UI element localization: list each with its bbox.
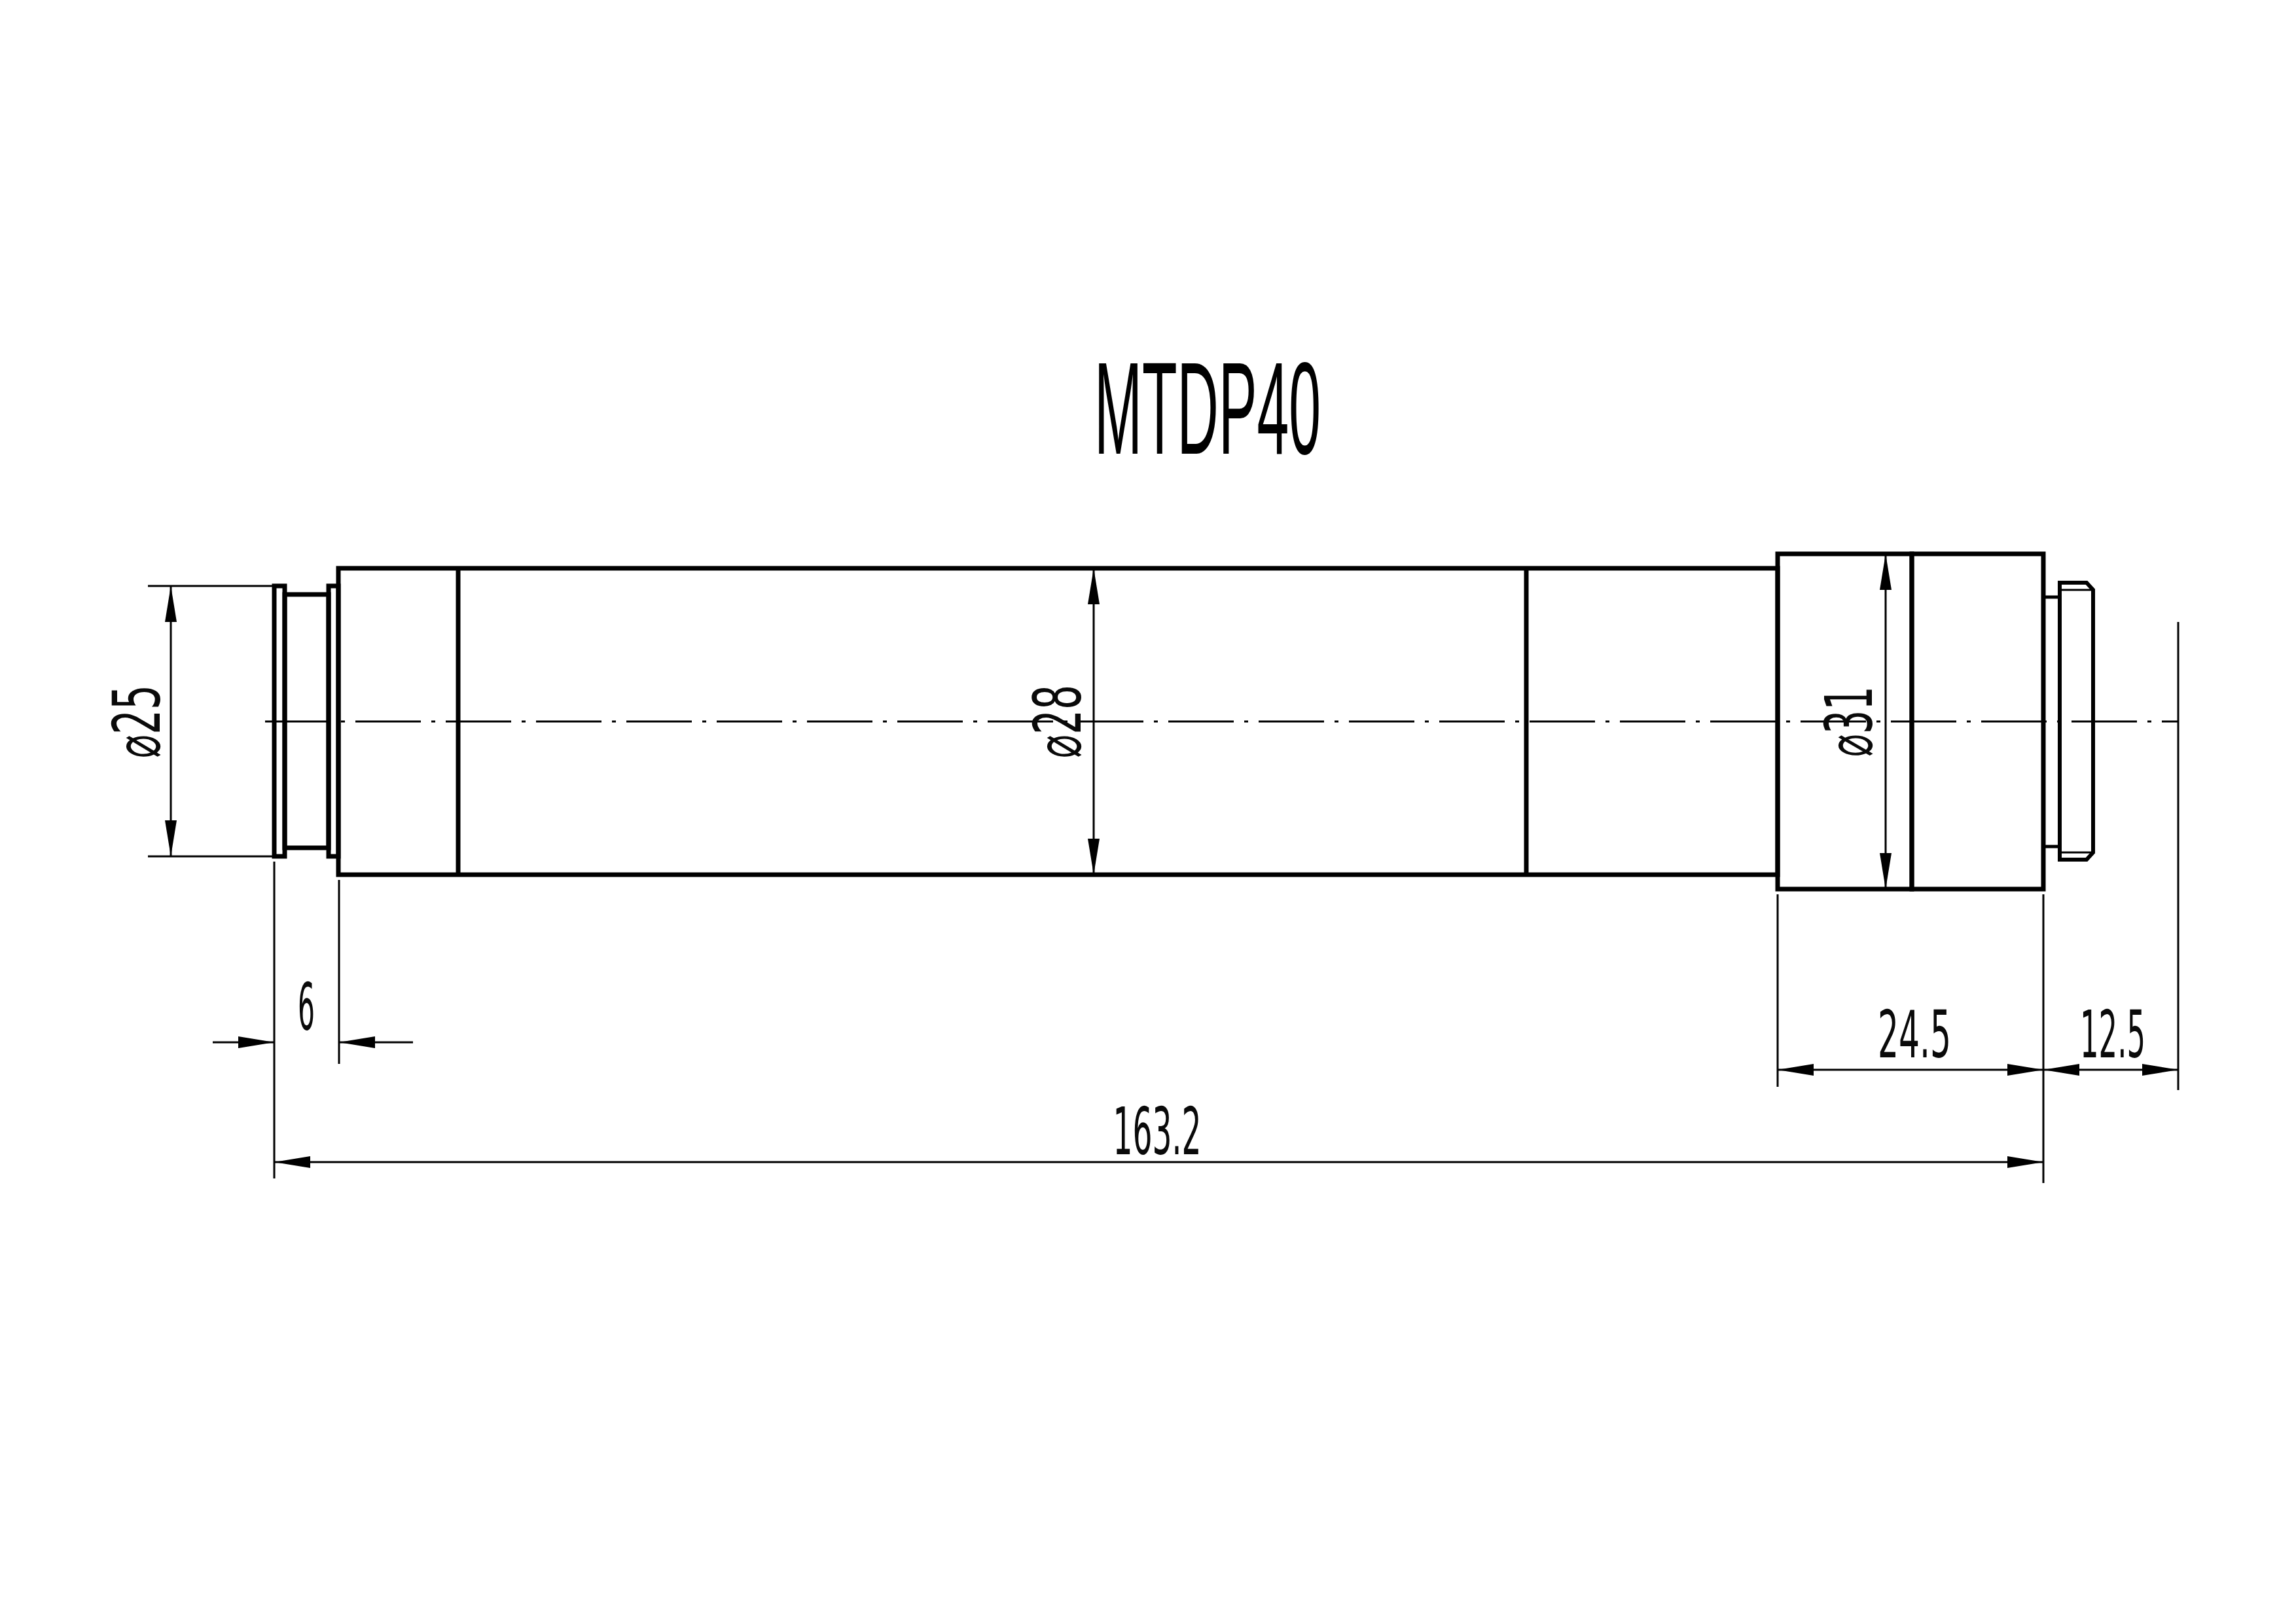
dim-text-6: 6 [298,969,315,1046]
lens-technical-drawing: MTDP40 ⌀25 [0,0,2296,1623]
dim-text-dia-28: ⌀28 [1020,685,1096,758]
dim-text-dia-25: ⌀25 [99,685,175,758]
dim-text-12-5: 12.5 [2080,996,2145,1073]
drawing-sheet [0,0,2296,1623]
drawing-title: MTDP40 [1094,335,1321,481]
dim-text-163-2: 163.2 [1113,1093,1202,1170]
dim-text-24-5: 24.5 [1878,996,1951,1073]
dim-text-dia-31: ⌀31 [1811,686,1888,757]
